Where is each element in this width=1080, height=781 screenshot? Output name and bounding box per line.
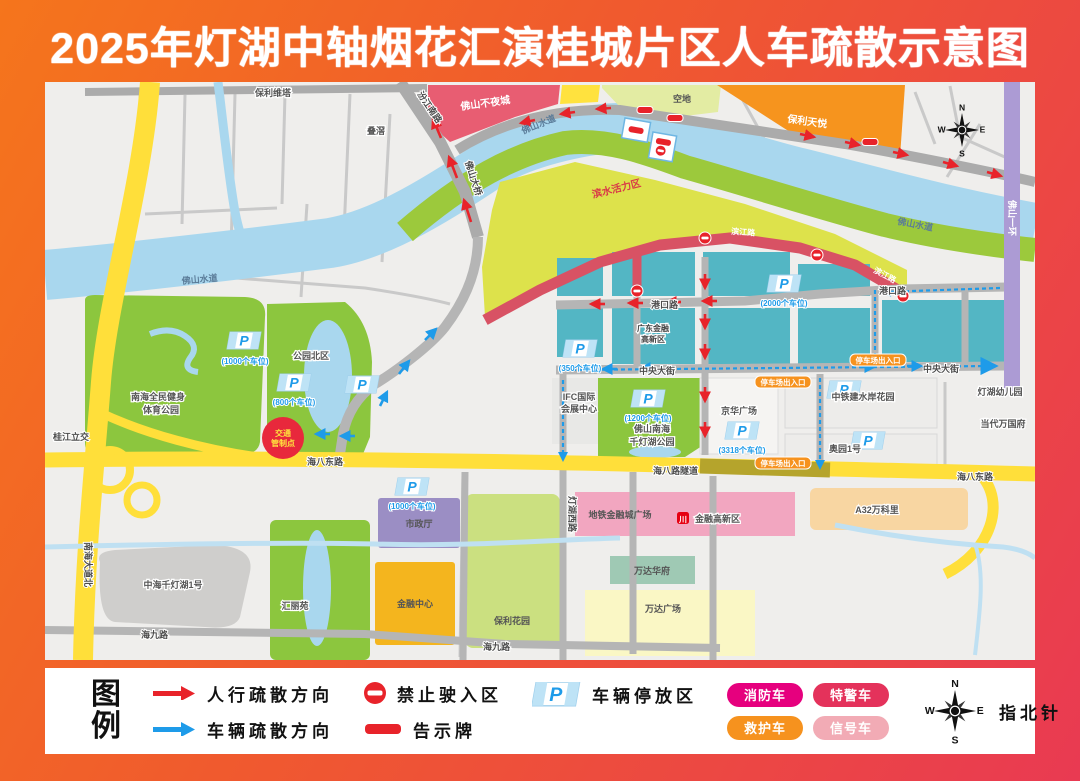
svg-text:广东金融: 广东金融 <box>637 323 669 333</box>
map-panel: P N S W E <box>45 82 1035 660</box>
svg-text:海八东路: 海八东路 <box>307 456 344 467</box>
south-park-lake <box>629 446 681 458</box>
legend-item-vehicle: 车辆疏散方向 <box>151 717 333 741</box>
svg-text:中海千灯湖1号: 中海千灯湖1号 <box>143 579 202 590</box>
blue-arrow-icon <box>151 722 197 736</box>
svg-text:桂江立交: 桂江立交 <box>52 431 89 442</box>
evacuation-map: P N S W E <box>45 82 1035 660</box>
svg-text:港口路: 港口路 <box>879 285 907 296</box>
svg-text:佛山南海: 佛山南海 <box>633 423 670 434</box>
svg-text:(3318个车位): (3318个车位) <box>718 445 765 455</box>
svg-text:管制点: 管制点 <box>271 438 295 448</box>
svg-text:市政厅: 市政厅 <box>405 518 432 529</box>
svg-text:灯湖幼儿园: 灯湖幼儿园 <box>977 386 1022 397</box>
svg-text:金融高新区: 金融高新区 <box>694 513 740 524</box>
svg-text:停车场出入口: 停车场出入口 <box>761 458 806 468</box>
svg-text:京华广场: 京华广场 <box>721 405 757 416</box>
signal-truck-badge: 信号车 <box>813 716 889 740</box>
metro-station-marker: 川 金融高新区 <box>677 512 740 524</box>
svg-text:川: 川 <box>678 515 687 524</box>
svg-text:奥园1号: 奥园1号 <box>828 443 861 454</box>
legend-compass-label: 指北针 <box>999 699 1062 724</box>
legend-item-pedestrian: 人行疏散方向 <box>151 681 333 705</box>
legend-arrow-column: 人行疏散方向 车辆疏散方向 <box>151 681 333 741</box>
svg-text:IFC国际: IFC国际 <box>563 392 596 402</box>
svg-text:中央大街: 中央大街 <box>923 363 959 374</box>
ambulance-badge: 救护车 <box>727 716 803 740</box>
svg-text:(1000个车位): (1000个车位) <box>388 501 435 511</box>
legend-no-entry-label: 禁止驶入区 <box>397 681 502 706</box>
no-entry-icon <box>363 681 387 705</box>
svg-text:体育公园: 体育公园 <box>143 404 179 415</box>
legend-title: 图 例 <box>91 679 121 743</box>
svg-text:海八路隧道: 海八路隧道 <box>653 465 698 476</box>
svg-text:海九路: 海九路 <box>141 629 169 640</box>
legend-restriction-column: 禁止驶入区 告示牌 <box>363 681 502 741</box>
svg-text:停车场出入口: 停车场出入口 <box>856 355 901 365</box>
svg-text:叠滘: 叠滘 <box>367 125 385 136</box>
evacuation-poster: 2025年灯湖中轴烟花汇演桂城片区人车疏散示意图 P <box>0 0 1080 781</box>
svg-text:港口路: 港口路 <box>651 299 679 310</box>
legend-parking-label: 车辆停放区 <box>592 682 697 707</box>
legend-notice-board-label: 告示牌 <box>413 717 476 742</box>
svg-text:停车场出入口: 停车场出入口 <box>761 377 806 387</box>
legend-item-parking: 车辆停放区 <box>532 682 697 706</box>
svg-text:交通: 交通 <box>275 428 291 438</box>
svg-text:中铁建水岸花园: 中铁建水岸花园 <box>831 391 894 402</box>
poster-title: 2025年灯湖中轴烟花汇演桂城片区人车疏散示意图 <box>0 14 1080 76</box>
swat-truck-badge: 特警车 <box>813 683 889 707</box>
svg-text:公园北区: 公园北区 <box>293 350 329 361</box>
legend-panel: 图 例 人行疏散方向 车辆疏散方向 <box>45 668 1035 754</box>
legend-compass: 指北针 <box>919 675 1062 747</box>
svg-text:万达广场: 万达广场 <box>644 603 681 614</box>
block-yellow-small <box>560 85 600 104</box>
compass-icon <box>919 675 991 747</box>
svg-text:(1000个车位): (1000个车位) <box>221 356 268 366</box>
svg-text:南海大道北: 南海大道北 <box>83 542 94 587</box>
svg-text:南海全民健身: 南海全民健身 <box>131 391 185 402</box>
legend-parking-column: 车辆停放区 <box>532 682 697 706</box>
huili-pond <box>303 530 331 646</box>
svg-text:高新区: 高新区 <box>641 334 665 344</box>
traffic-control-marker: 交通 管制点 <box>262 417 304 459</box>
parking-zone-icon <box>532 682 582 707</box>
svg-text:保利维塔: 保利维塔 <box>254 87 292 98</box>
svg-text:佛山一环: 佛山一环 <box>1007 199 1018 236</box>
svg-text:当代万国府: 当代万国府 <box>980 418 1025 429</box>
legend-vehicle-label: 车辆疏散方向 <box>207 717 333 742</box>
svg-text:地铁金融城广场: 地铁金融城广场 <box>588 509 651 520</box>
legend-item-no-entry: 禁止驶入区 <box>363 681 502 705</box>
svg-text:保利花园: 保利花园 <box>493 615 530 626</box>
svg-text:A32万科里: A32万科里 <box>855 504 899 515</box>
svg-text:(2000个车位): (2000个车位) <box>760 298 807 308</box>
svg-text:中央大街: 中央大街 <box>639 365 675 376</box>
svg-text:空地: 空地 <box>673 93 691 104</box>
legend-vehicle-badges: 消防车 特警车 救护车 信号车 <box>727 683 889 740</box>
svg-text:(800个车位): (800个车位) <box>273 397 316 407</box>
red-arrow-icon <box>151 686 197 700</box>
svg-text:海九路: 海九路 <box>483 641 511 652</box>
svg-text:(1200个车位): (1200个车位) <box>624 413 671 423</box>
svg-text:灯湖西路: 灯湖西路 <box>567 496 578 533</box>
svg-text:会展中心: 会展中心 <box>561 403 597 414</box>
svg-text:海八东路: 海八东路 <box>957 471 994 482</box>
svg-text:滨江路: 滨江路 <box>731 226 757 238</box>
fire-truck-badge: 消防车 <box>727 683 803 707</box>
block-jinghua <box>700 378 778 454</box>
legend-pedestrian-label: 人行疏散方向 <box>207 681 333 706</box>
svg-text:千灯湖公园: 千灯湖公园 <box>629 436 674 447</box>
notice-board-icon <box>363 723 403 735</box>
svg-text:金融中心: 金融中心 <box>396 598 433 609</box>
svg-text:(350个车位): (350个车位) <box>559 363 602 373</box>
svg-text:万达华府: 万达华府 <box>633 565 670 576</box>
svg-text:汇丽苑: 汇丽苑 <box>281 600 308 611</box>
legend-item-notice-board: 告示牌 <box>363 717 502 741</box>
